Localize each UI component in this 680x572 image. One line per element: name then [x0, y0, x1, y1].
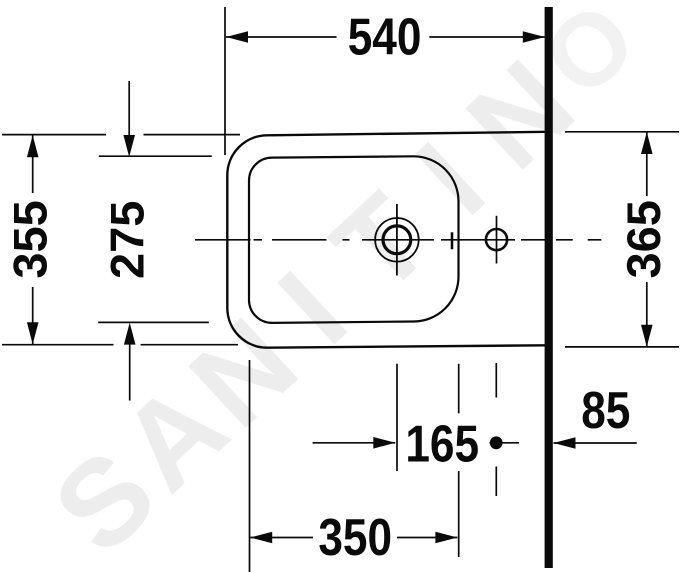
svg-text:540: 540 — [348, 8, 422, 66]
svg-text:365: 365 — [617, 200, 670, 278]
svg-text:165: 165 — [405, 415, 479, 473]
svg-text:355: 355 — [4, 200, 57, 278]
svg-text:85: 85 — [581, 381, 630, 439]
svg-text:275: 275 — [101, 201, 154, 279]
svg-text:350: 350 — [318, 508, 392, 566]
